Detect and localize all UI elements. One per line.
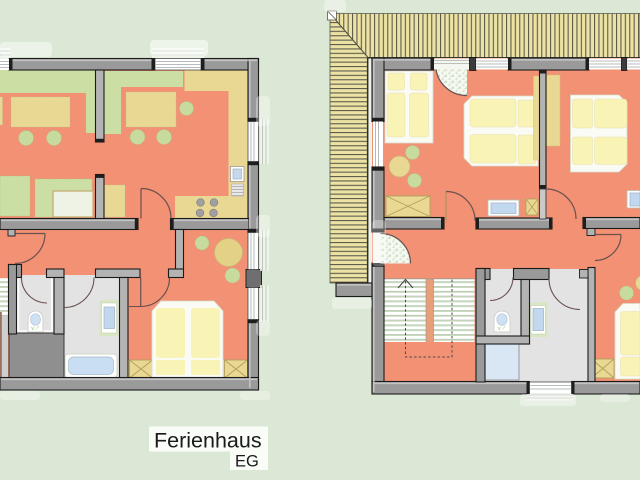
svg-text:EG: EG — [235, 453, 259, 471]
svg-text:Ferienhaus: Ferienhaus — [154, 429, 262, 453]
